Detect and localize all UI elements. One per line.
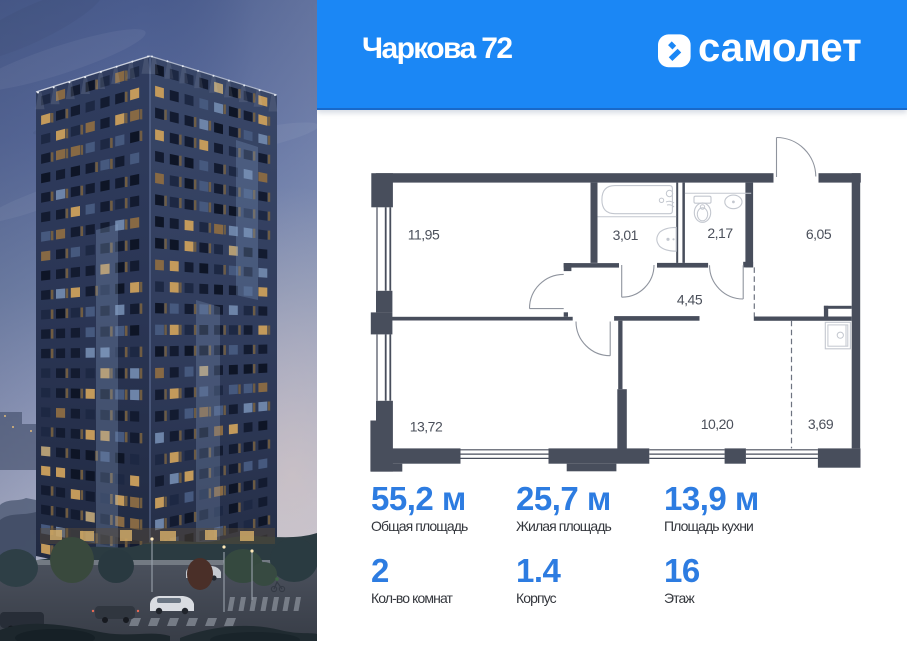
- svg-text:2,17: 2,17: [707, 225, 733, 241]
- svg-text:11,95: 11,95: [408, 226, 440, 242]
- svg-text:10,20: 10,20: [701, 416, 734, 432]
- svg-text:3,69: 3,69: [808, 416, 834, 432]
- svg-text:6,05: 6,05: [806, 226, 832, 242]
- svg-text:3,01: 3,01: [613, 227, 639, 243]
- svg-text:4,45: 4,45: [677, 291, 703, 307]
- svg-text:13,72: 13,72: [410, 419, 443, 435]
